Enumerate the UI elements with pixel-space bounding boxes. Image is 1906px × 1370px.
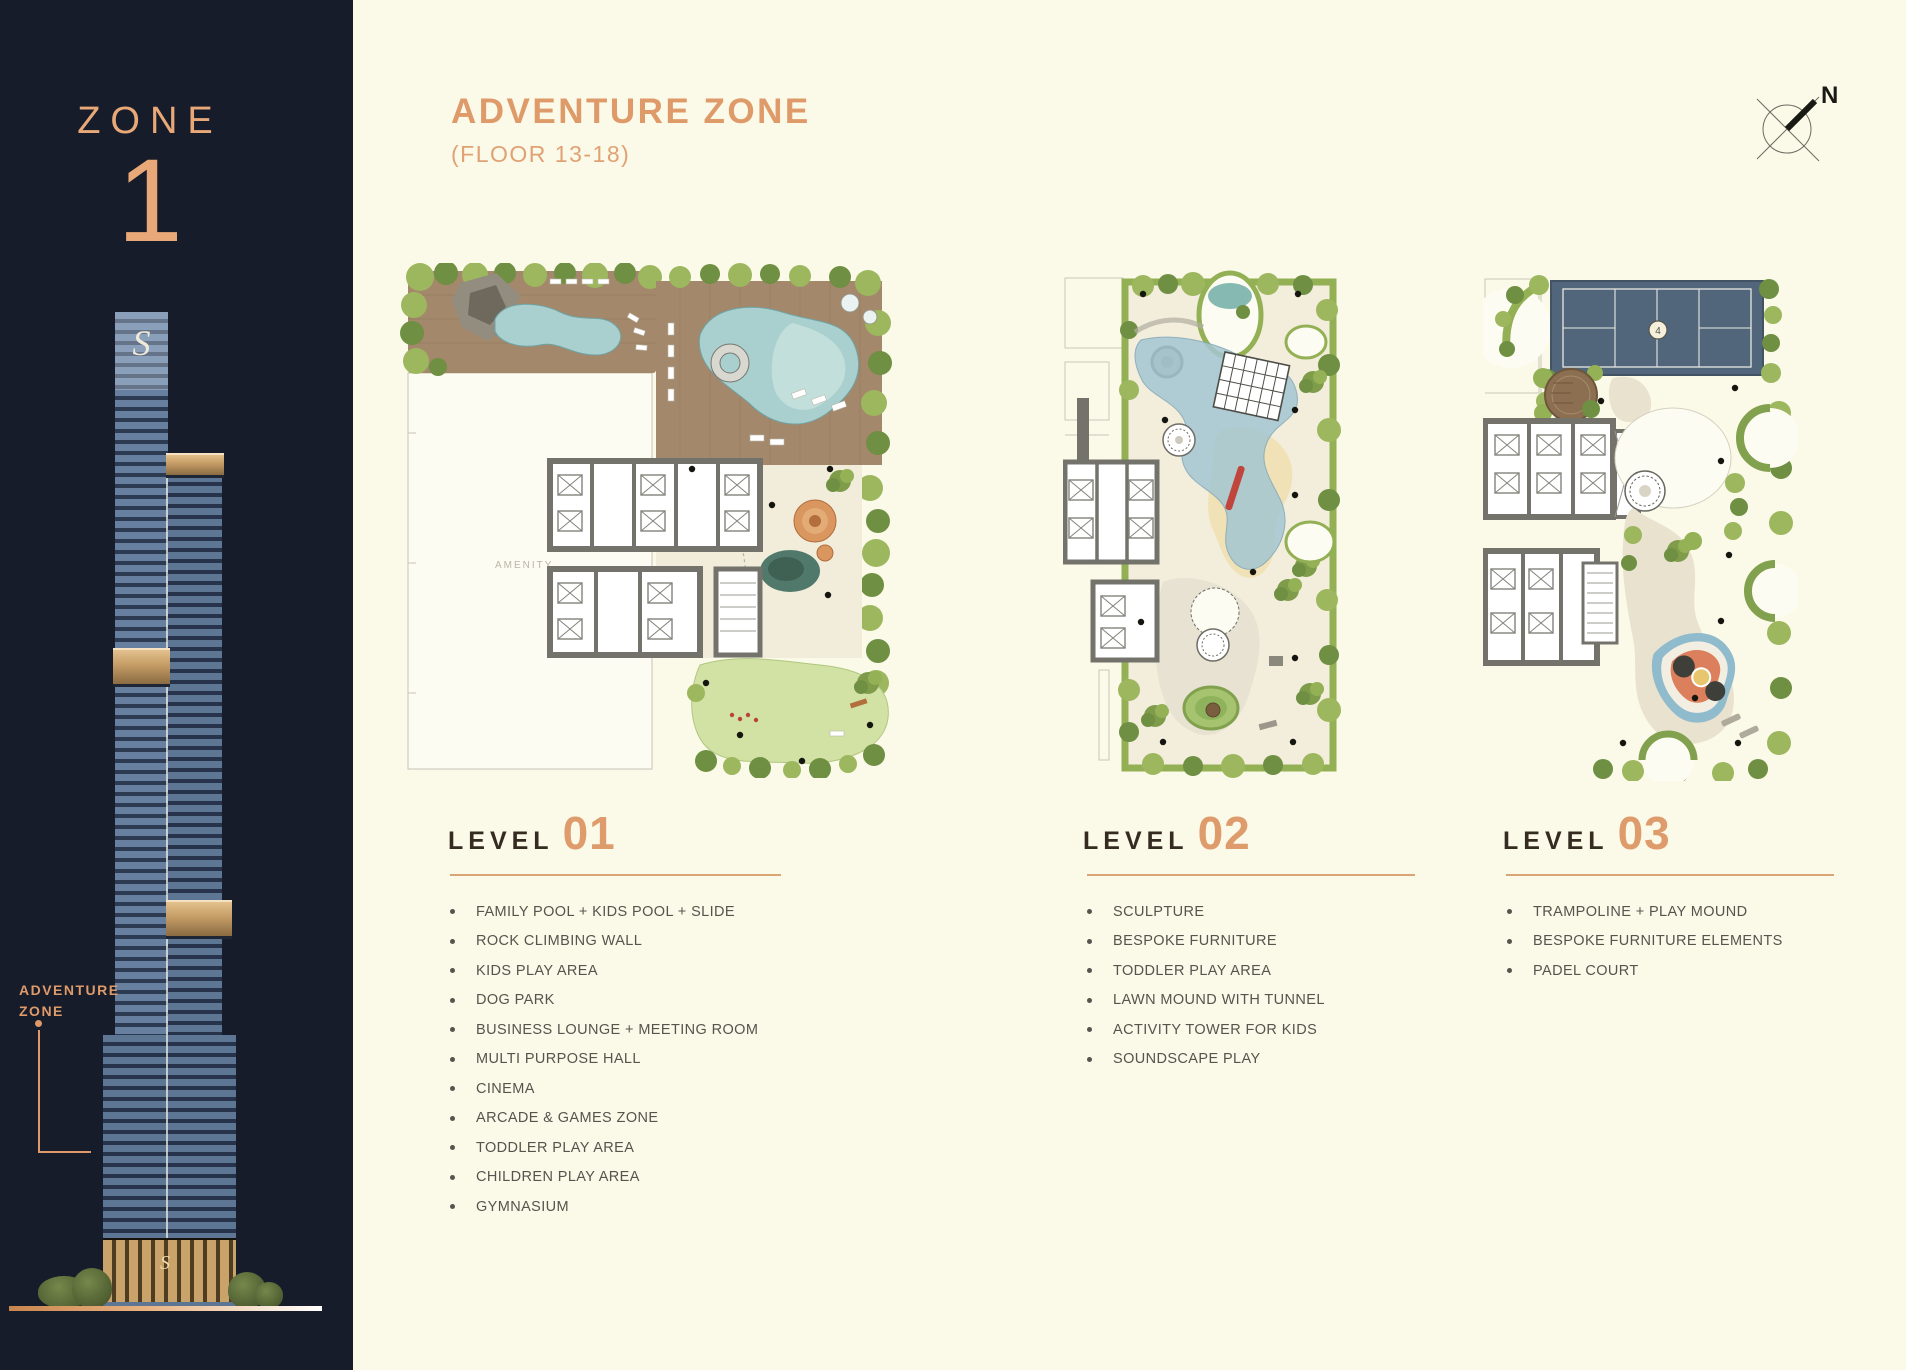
marker-line [38,1151,91,1153]
amenity-list-item: KIDS PLAY AREA [447,956,758,986]
tower-base-line [9,1306,322,1311]
level-01-heading: LEVEL 01 [448,806,616,860]
level-number: 03 [1618,806,1671,860]
podium-logo: S [160,1252,180,1275]
amenity-list-item: SCULPTURE [1084,897,1325,927]
adventure-zone-marker-label: ADVENTURE ZONE [19,980,120,1022]
level-03-floor-plan: 4 [1483,273,1798,781]
amenity-list-item: CINEMA [447,1074,758,1104]
page-subtitle: (FLOOR 13-18) [451,141,630,168]
level-01-floor-plan: AMENITY [400,263,910,778]
amenity-list-item: TODDLER PLAY AREA [447,1133,758,1163]
amenity-list-item: GYMNASIUM [447,1192,758,1222]
level-03-rule [1506,874,1834,876]
page-title: ADVENTURE ZONE [451,92,811,132]
sky-terrace [166,900,232,939]
amenity-list-item: FAMILY POOL + KIDS POOL + SLIDE [447,897,758,927]
level-word: LEVEL [448,827,554,856]
amenity-list-item: BESPOKE FURNITURE ELEMENTS [1504,927,1783,957]
tower-logo: S [115,322,168,364]
svg-text:AMENITY: AMENITY [495,560,553,571]
amenity-list-item: TRAMPOLINE + PLAY MOUND [1504,897,1783,927]
svg-text:N: N [1821,82,1838,109]
amenity-list-item: DOG PARK [447,986,758,1016]
level-01-rule [450,874,781,876]
level-word: LEVEL [1503,827,1609,856]
amenity-list-item: ACTIVITY TOWER FOR KIDS [1084,1015,1325,1045]
amenity-list-item: PADEL COURT [1504,956,1783,986]
svg-text:4: 4 [1655,326,1661,337]
level-03-heading: LEVEL 03 [1503,806,1671,860]
level-03-amenity-list: TRAMPOLINE + PLAY MOUNDBESPOKE FURNITURE… [1504,897,1783,986]
amenity-list-item: SOUNDSCAPE PLAY [1084,1045,1325,1075]
zone-number: 1 [0,142,300,260]
north-compass-icon: N [1735,75,1845,170]
level-number: 02 [1198,806,1251,860]
brochure-page: { "colors": { "accent_copper": "#DE9A69"… [0,0,1906,1370]
amenity-list-item: BESPOKE FURNITURE [1084,927,1325,957]
level-02-floor-plan [1063,270,1348,780]
marker-dot [35,1020,42,1027]
sky-terrace [166,453,224,478]
level-02-amenity-list: SCULPTUREBESPOKE FURNITURETODDLER PLAY A… [1084,897,1325,1074]
level-02-rule [1087,874,1415,876]
amenity-list-item: BUSINESS LOUNGE + MEETING ROOM [447,1015,758,1045]
level-word: LEVEL [1083,827,1189,856]
amenity-list-item: TODDLER PLAY AREA [1084,956,1325,986]
sidebar: ZONE 1 S S ADVENTURE ZONE [0,0,353,1370]
tower-mullion-line [166,455,168,1300]
tree [72,1268,112,1308]
tower-secondary-shaft [168,453,222,1052]
amenity-list-item: ARCADE & GAMES ZONE [447,1104,758,1134]
marker-line [38,1030,40,1152]
level-number: 01 [563,806,616,860]
amenity-list-item: MULTI PURPOSE HALL [447,1045,758,1075]
amenity-list-item: LAWN MOUND WITH TUNNEL [1084,986,1325,1016]
level-01-amenity-list: FAMILY POOL + KIDS POOL + SLIDEROCK CLIM… [447,897,758,1222]
level-02-heading: LEVEL 02 [1083,806,1251,860]
sky-terrace [113,648,170,687]
amenity-list-item: ROCK CLIMBING WALL [447,927,758,957]
amenity-list-item: CHILDREN PLAY AREA [447,1163,758,1193]
tree [255,1282,283,1308]
